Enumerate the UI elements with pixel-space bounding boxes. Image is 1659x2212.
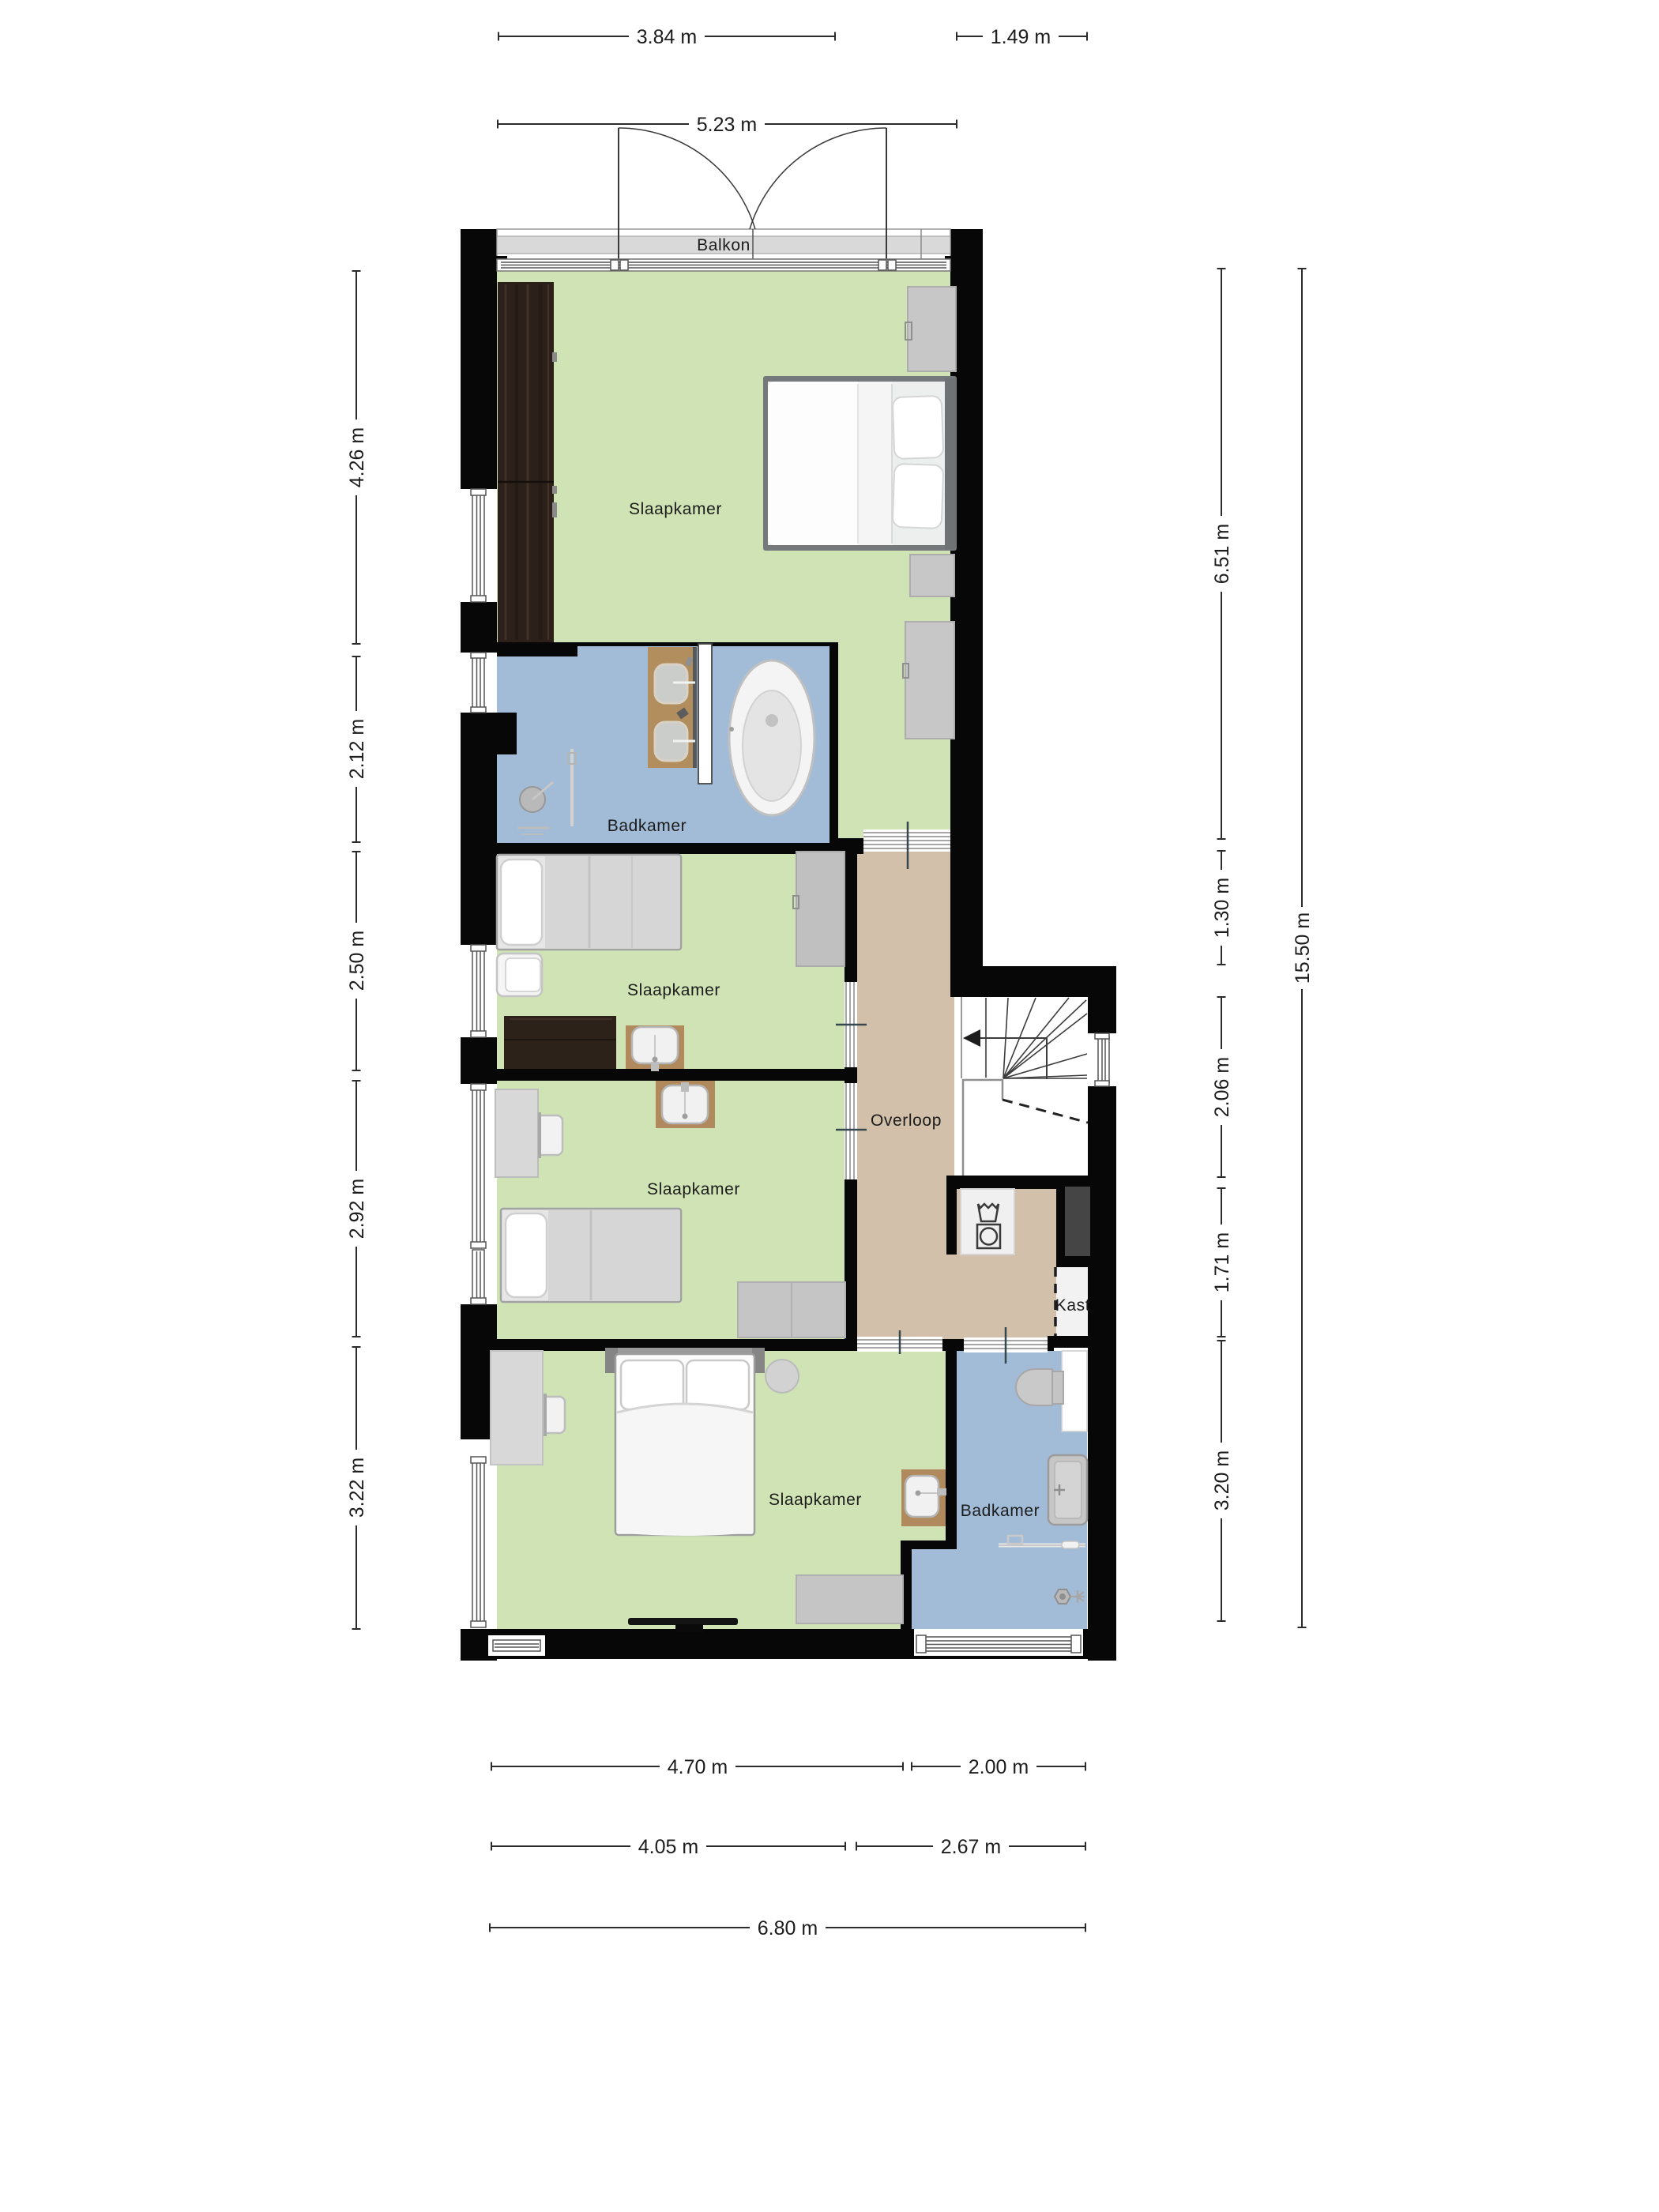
svg-text:6.80 m: 6.80 m: [758, 1917, 818, 1939]
svg-text:1.49 m: 1.49 m: [991, 26, 1051, 48]
svg-text:Overloop: Overloop: [871, 1112, 942, 1130]
svg-text:Slaapkamer: Slaapkamer: [629, 500, 722, 518]
svg-text:4.70 m: 4.70 m: [668, 1756, 728, 1778]
svg-text:2.67 m: 2.67 m: [941, 1836, 1001, 1858]
svg-text:4.05 m: 4.05 m: [638, 1836, 698, 1858]
svg-text:Slaapkamer: Slaapkamer: [769, 1491, 862, 1509]
svg-text:Slaapkamer: Slaapkamer: [647, 1180, 740, 1198]
svg-text:2.06 m: 2.06 m: [1211, 1057, 1233, 1117]
svg-text:3.22 m: 3.22 m: [346, 1458, 368, 1518]
svg-text:Kast: Kast: [1055, 1296, 1090, 1315]
svg-text:Slaapkamer: Slaapkamer: [627, 981, 720, 999]
svg-text:2.00 m: 2.00 m: [969, 1756, 1029, 1778]
svg-text:2.50 m: 2.50 m: [346, 931, 368, 991]
svg-text:5.23 m: 5.23 m: [697, 114, 757, 136]
svg-text:3.20 m: 3.20 m: [1211, 1450, 1233, 1510]
svg-text:6.51 m: 6.51 m: [1211, 524, 1233, 584]
svg-text:1.30 m: 1.30 m: [1211, 878, 1233, 938]
svg-text:3.84 m: 3.84 m: [637, 26, 697, 48]
svg-text:Balkon: Balkon: [697, 236, 750, 254]
svg-text:4.26 m: 4.26 m: [346, 427, 368, 487]
svg-text:1.71 m: 1.71 m: [1211, 1232, 1233, 1292]
svg-text:15.50 m: 15.50 m: [1292, 912, 1314, 984]
svg-text:Badkamer: Badkamer: [961, 1502, 1040, 1520]
svg-text:Badkamer: Badkamer: [608, 817, 687, 835]
svg-text:2.12 m: 2.12 m: [346, 719, 368, 779]
svg-text:2.92 m: 2.92 m: [346, 1179, 368, 1239]
